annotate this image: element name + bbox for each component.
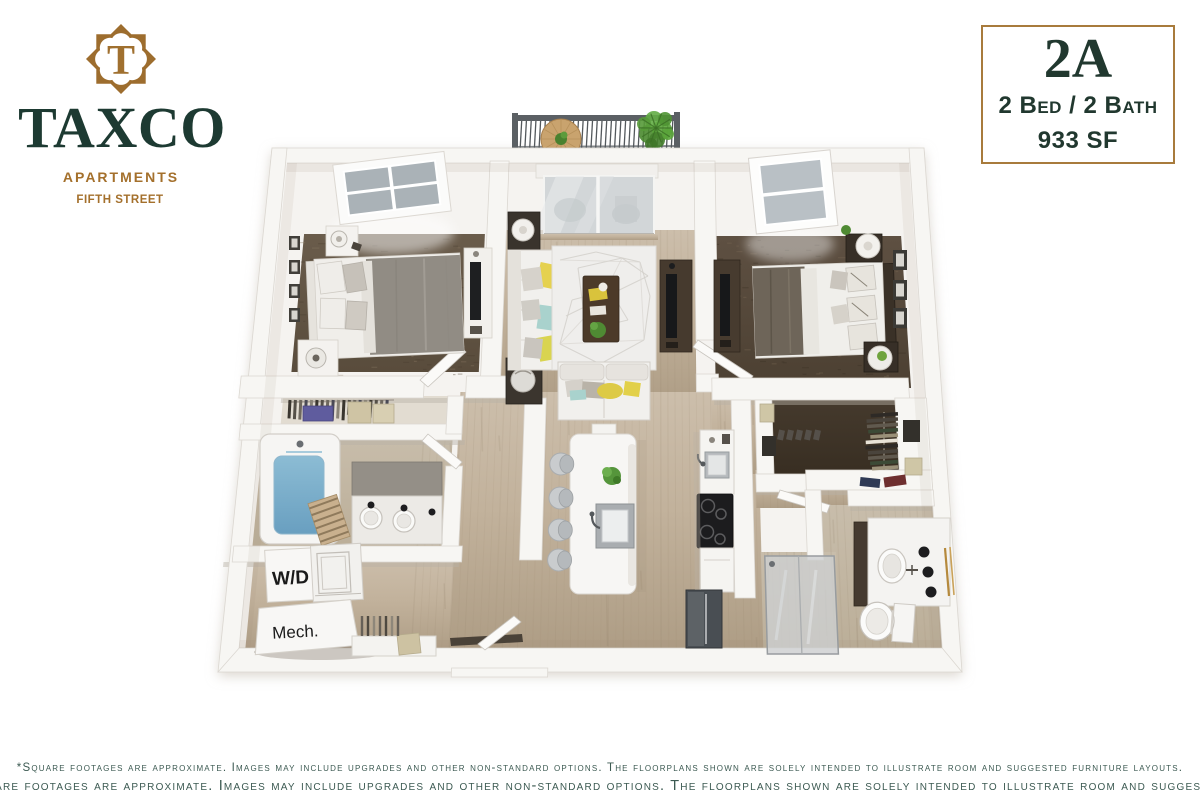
svg-text:Mech.: Mech. <box>272 621 319 642</box>
svg-text:W/D: W/D <box>272 567 310 590</box>
